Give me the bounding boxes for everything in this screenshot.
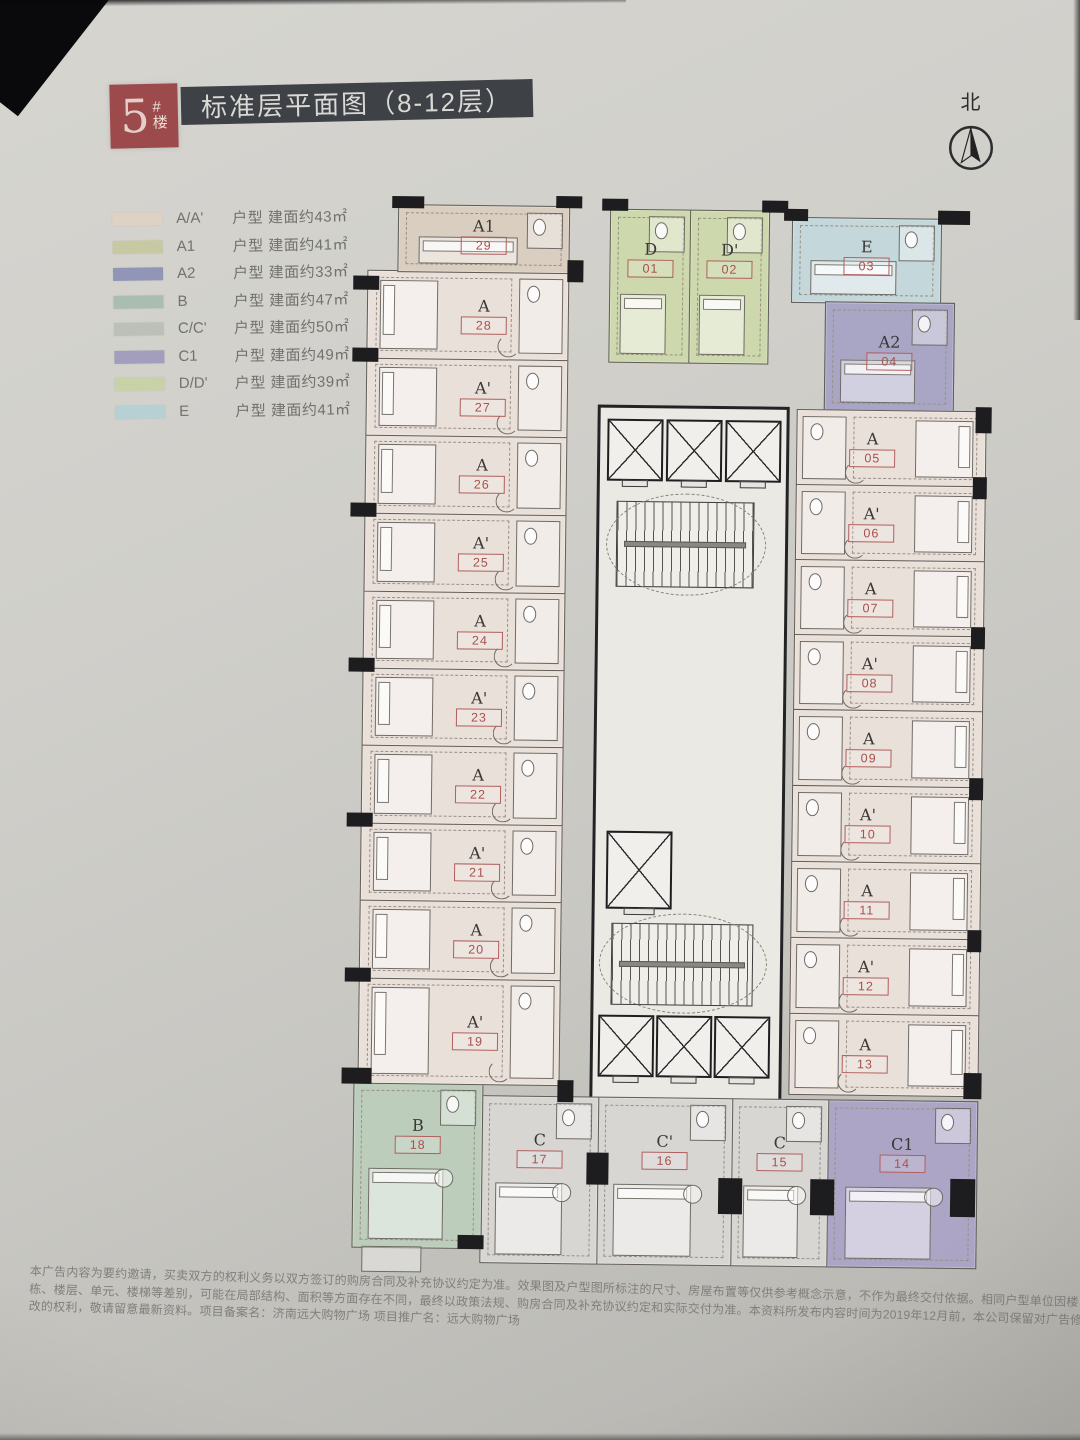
toilet-icon [805, 875, 818, 892]
bed-icon [612, 1184, 691, 1257]
unit-16: C'16 [595, 1097, 733, 1267]
unit-type-letter: A [472, 767, 484, 784]
pillow [952, 954, 965, 996]
unit-21: A'21 [360, 822, 563, 903]
legend-desc: 户型 建面约43㎡ [232, 206, 348, 229]
unit-label: A'23 [456, 689, 502, 727]
wall-block [810, 1179, 834, 1215]
bed-icon [379, 280, 438, 350]
bed-icon [699, 295, 745, 355]
pillow [379, 605, 392, 648]
unit-number: 22 [455, 785, 501, 804]
unit-label: A07 [847, 580, 893, 618]
staircase-icon [616, 501, 755, 589]
unit-number: 11 [844, 901, 890, 920]
unit-type-letter: A [470, 922, 482, 939]
toilet-icon [803, 1027, 816, 1044]
unit-label: A24 [457, 612, 503, 650]
bathroom [514, 676, 559, 742]
bathroom [912, 309, 948, 345]
legend-item: C/C'户型 建面约50㎡ [114, 312, 350, 343]
unit-number: 14 [879, 1155, 925, 1174]
bed-icon [371, 987, 430, 1075]
unit-label: A20 [453, 921, 499, 959]
unit-label: A'10 [845, 806, 891, 844]
unit-label: A22 [455, 766, 501, 804]
toilet-icon [807, 723, 820, 740]
wall-block [347, 812, 373, 826]
pillow [382, 372, 395, 415]
unit-number: 07 [847, 599, 893, 618]
unit-label: C'16 [641, 1133, 687, 1171]
legend-item: B户型 建面约47㎡ [113, 285, 349, 316]
unit-label: C114 [879, 1136, 925, 1174]
bed-icon [619, 294, 666, 354]
bathroom [796, 868, 841, 933]
toilet-icon [808, 648, 821, 665]
unit-number: 29 [461, 236, 507, 255]
wall-block [975, 407, 991, 433]
elevator-icon [714, 1016, 771, 1079]
table-icon [924, 1188, 943, 1207]
bed-icon [911, 720, 970, 779]
legend-swatch [114, 350, 164, 364]
bed-icon [907, 1024, 966, 1087]
bathroom [517, 366, 562, 432]
bathroom [440, 1090, 476, 1126]
bed-icon [372, 909, 431, 970]
bathroom [800, 566, 845, 630]
unit-number: 08 [846, 674, 892, 693]
unit-type-letter: E [861, 238, 873, 255]
unit-number: 16 [641, 1152, 687, 1171]
bathroom [512, 831, 557, 897]
door-arc [837, 1071, 859, 1093]
unit-type-letter: A [865, 580, 877, 597]
unit-type-letter: A' [471, 689, 487, 706]
bathroom [799, 641, 844, 705]
unit-10: A'10 [791, 785, 982, 865]
unit-type-letter: A1 [473, 217, 495, 234]
unit-type-letter: C1 [891, 1136, 914, 1153]
unit-type-letter: C' [656, 1133, 673, 1150]
table-icon [683, 1185, 702, 1204]
unit-type-letter: A [859, 1036, 871, 1053]
unit-number: 01 [627, 259, 673, 278]
floor-plan: D01D'02E03A204A05A'06A07A'08A09A'10A11A'… [339, 192, 994, 1278]
wall-block [352, 348, 378, 362]
unit-01: D01 [608, 209, 692, 364]
unit-25: A'25 [363, 512, 566, 594]
pillow [624, 298, 663, 309]
unit-23: A'23 [362, 667, 565, 748]
unit-type-letter: A' [475, 379, 491, 396]
wall-block [602, 199, 628, 211]
bed-icon [368, 1168, 443, 1240]
wall-block [567, 260, 583, 282]
unit-type-letter: A' [858, 958, 874, 975]
bathroom [801, 491, 846, 555]
bathroom [797, 792, 842, 857]
pillow [374, 992, 387, 1055]
elevator-icon [606, 831, 673, 910]
bathroom [511, 908, 556, 975]
legend-swatch [115, 377, 165, 391]
bed-icon [374, 754, 433, 815]
toilet-icon [518, 993, 531, 1010]
unit-type-letter: A' [473, 535, 489, 552]
bathroom [794, 1020, 839, 1089]
pillow [376, 837, 389, 880]
pillow [955, 651, 968, 693]
bed-icon [378, 444, 437, 505]
toilet-icon [655, 222, 668, 239]
wall-block [345, 967, 371, 981]
elevator-icon [656, 1015, 713, 1078]
pillow [380, 527, 393, 571]
unit-type-letter: A [863, 730, 875, 747]
door-arc [497, 335, 519, 357]
wall-block [967, 930, 981, 952]
unit-number: 04 [866, 352, 912, 371]
north-label: 北 [936, 86, 1006, 115]
unit-number: 20 [453, 940, 499, 959]
legend-label: E [179, 402, 235, 420]
legend-label: A1 [177, 237, 233, 255]
toilet-icon [519, 915, 532, 932]
toilet-icon [562, 1109, 575, 1126]
unit-04: A204 [824, 301, 955, 413]
pillow [849, 1191, 928, 1203]
legend-swatch [115, 405, 165, 419]
unit-type-letter: A' [860, 806, 876, 823]
wall-block [350, 503, 376, 517]
unit-number: 26 [459, 475, 505, 494]
toilet-icon [521, 760, 534, 777]
unit-type-letter: A' [469, 844, 485, 861]
pillow [703, 299, 740, 310]
bed-icon [910, 796, 969, 855]
wall-block [557, 1080, 573, 1102]
legend-item: A2户型 建面约33㎡ [113, 257, 349, 288]
unit-06: A'06 [795, 484, 986, 563]
wall-block [341, 1067, 371, 1083]
pillow [381, 449, 394, 493]
toilet-icon [905, 231, 918, 248]
toilet-icon [446, 1096, 459, 1113]
unit-number: 12 [843, 977, 889, 996]
bed-icon [913, 570, 972, 628]
unit-number: 05 [849, 449, 895, 468]
unit-type-letter: D [644, 240, 657, 257]
pillow [378, 682, 391, 725]
toilet-icon [733, 223, 746, 240]
unit-type-letter: A' [862, 655, 878, 672]
unit-label: B18 [395, 1117, 441, 1155]
unit-type-letter: A [478, 297, 490, 314]
bathroom [513, 753, 558, 820]
legend-desc: 户型 建面约41㎡ [232, 233, 348, 256]
unit-type-legend: A/A'户型 建面约43㎡A1户型 建面约41㎡A2户型 建面约33㎡B户型 建… [112, 202, 351, 426]
legend-swatch [112, 212, 162, 226]
unit-28: A28 [366, 270, 569, 361]
unit-number: 10 [845, 825, 891, 844]
unit-19: A'19 [357, 977, 560, 1086]
bathroom [517, 443, 562, 510]
wall-block [353, 276, 379, 290]
pillow [375, 914, 388, 958]
bathroom [802, 416, 847, 480]
north-arrow-icon [942, 117, 1000, 175]
pillow [954, 726, 967, 768]
toilet-icon [918, 315, 931, 332]
unit-label: C17 [516, 1131, 562, 1169]
elevator-icon [607, 419, 664, 482]
toilet-icon [809, 573, 822, 590]
legend-item: A/A'户型 建面约43㎡ [112, 202, 348, 233]
unit-number: 03 [843, 257, 889, 276]
unit-label: A05 [849, 430, 895, 468]
unit-type-letter: A [861, 882, 873, 899]
unit-label: A'08 [846, 655, 892, 693]
wall-block [586, 1152, 608, 1184]
legend-label: C1 [178, 347, 234, 365]
unit-05: A05 [796, 409, 987, 488]
unit-label: A28 [461, 297, 507, 335]
unit-label: A204 [866, 333, 912, 371]
unit-27: A'27 [365, 357, 568, 438]
legend-label: C/C' [178, 319, 234, 337]
bed-icon [915, 420, 974, 478]
unit-type-letter: D' [721, 241, 738, 258]
pillow [956, 576, 969, 618]
bed-icon [377, 522, 436, 583]
wall-block [969, 778, 983, 800]
unit-number: 02 [706, 260, 752, 279]
unit-label: A'21 [454, 844, 500, 882]
bed-icon [379, 367, 438, 427]
legend-label: A/A' [176, 209, 232, 227]
pillow [373, 1172, 439, 1184]
elevator-icon [725, 420, 782, 483]
north-indicator: 北 [936, 86, 1006, 175]
toilet-icon [809, 498, 822, 515]
wall-block [784, 209, 808, 221]
bathroom [798, 716, 843, 781]
unit-13: A13 [788, 1013, 979, 1097]
unit-label: D01 [627, 240, 673, 278]
unit-label: A26 [459, 456, 505, 494]
building-badge: 5 # 楼 [109, 83, 178, 149]
bathroom [795, 944, 840, 1009]
table-icon [434, 1169, 453, 1188]
legend-label: B [177, 292, 233, 310]
wall-block [971, 627, 985, 649]
unit-24: A24 [363, 590, 566, 671]
toilet-icon [524, 528, 537, 545]
legend-label: A2 [177, 264, 233, 282]
pillow [953, 802, 966, 844]
unit-type-letter: C [774, 1134, 786, 1151]
unit-label: E03 [843, 238, 889, 276]
legend-label: D/D' [179, 374, 235, 392]
building-number: 5 [120, 93, 150, 140]
pillow [383, 285, 396, 335]
unit-17: C17 [479, 1095, 599, 1264]
pillow [377, 759, 390, 803]
pillow [953, 878, 966, 920]
unit-18: B18 [351, 1082, 483, 1250]
wall-block [950, 1179, 975, 1217]
wall-block [963, 1073, 981, 1099]
bathroom [899, 225, 935, 261]
toilet-icon [806, 799, 819, 816]
bed-icon [844, 1187, 931, 1260]
unit-number: 09 [846, 749, 892, 768]
unit-12: A'12 [789, 937, 980, 1017]
wall-block [556, 196, 582, 208]
unit-label: A'12 [843, 958, 889, 996]
unit-26: A26 [364, 434, 567, 516]
legend-swatch [113, 267, 163, 281]
bed-icon [375, 677, 434, 737]
toilet-icon [526, 373, 539, 390]
unit-08: A'08 [793, 634, 984, 713]
unit-type-letter: C [534, 1131, 546, 1148]
bathroom [935, 1108, 971, 1144]
unit-number: 13 [842, 1055, 888, 1074]
unit-number: 24 [457, 631, 503, 650]
unit-type-letter: A2 [879, 333, 901, 350]
toilet-icon [792, 1112, 805, 1129]
wall-block [973, 477, 987, 499]
unit-type-letter: A' [467, 1013, 483, 1030]
photo-edge [1073, 0, 1080, 320]
building-suffix: # 楼 [152, 99, 168, 131]
bed-icon [908, 948, 967, 1007]
unit-type-letter: A [867, 430, 879, 447]
unit-number: 23 [456, 708, 502, 727]
toilet-icon [520, 838, 533, 855]
legend-item: C1户型 建面约49㎡ [114, 340, 350, 371]
bed-icon [914, 495, 973, 553]
pillow [957, 501, 970, 543]
wall-block [349, 658, 375, 672]
unit-label: A11 [844, 882, 890, 920]
unit-number: 25 [458, 553, 504, 572]
legend-swatch [113, 295, 163, 309]
wall-block [718, 1178, 742, 1214]
bathroom [518, 279, 563, 355]
unit-type-letter: A [476, 457, 488, 474]
unit-02: D'02 [688, 210, 770, 365]
unit-number: 21 [454, 863, 500, 882]
pillow [617, 1188, 687, 1200]
legend-swatch [113, 240, 163, 254]
staircase-icon [610, 923, 753, 1007]
unit-number: 15 [756, 1153, 802, 1172]
pillow [958, 426, 971, 468]
pillow [499, 1187, 558, 1199]
door-arc [488, 1060, 510, 1082]
unit-type-letter: B [412, 1117, 424, 1134]
unit-number: 06 [848, 524, 894, 543]
bed-icon [912, 645, 971, 703]
photo-edge [0, 1433, 1080, 1440]
balcony [361, 1246, 421, 1273]
bathroom [515, 599, 560, 665]
toilet-icon [525, 450, 538, 467]
legend-desc: 户型 建面约49㎡ [234, 343, 350, 366]
bathroom [516, 521, 561, 588]
unit-22: A22 [361, 744, 564, 826]
unit-label: A09 [846, 730, 892, 768]
unit-07: A07 [794, 559, 985, 638]
legend-desc: 户型 建面约33㎡ [233, 261, 349, 284]
unit-label: A'25 [458, 534, 504, 572]
unit-29: A129 [397, 204, 570, 274]
unit-09: A09 [792, 709, 983, 789]
toilet-icon [810, 423, 823, 440]
unit-label: A129 [461, 217, 507, 255]
table-icon [553, 1183, 572, 1202]
toilet-icon [522, 683, 535, 700]
unit-number: 28 [461, 316, 507, 335]
unit-11: A11 [790, 861, 981, 941]
wall-block [938, 211, 970, 225]
unit-label: A'27 [460, 379, 506, 417]
toilet-icon [941, 1114, 954, 1131]
bed-icon [909, 872, 968, 931]
unit-label: A13 [842, 1036, 888, 1074]
unit-20: A20 [359, 899, 562, 981]
wall-block [457, 1235, 483, 1249]
unit-type-letter: A [474, 612, 486, 629]
bathroom [690, 1105, 726, 1141]
legend-item: D/D'户型 建面约39㎡ [115, 367, 351, 398]
toilet-icon [804, 951, 817, 968]
bathroom [527, 213, 563, 249]
legend-desc: 户型 建面约39㎡ [235, 371, 351, 394]
unit-03: E03 [791, 217, 942, 305]
unit-label: A'19 [452, 1013, 498, 1051]
toilet-icon [696, 1111, 709, 1128]
bed-icon [373, 832, 432, 892]
unit-number: 19 [452, 1032, 498, 1051]
pillow [951, 1030, 964, 1075]
legend-desc: 户型 建面约50㎡ [234, 316, 350, 339]
unit-label: A'06 [848, 505, 894, 543]
toilet-icon [527, 286, 540, 303]
legend-item: E户型 建面约41㎡ [115, 395, 351, 426]
unit-number: 27 [460, 398, 506, 417]
toilet-icon [523, 606, 536, 623]
bathroom [510, 986, 555, 1080]
unit-label: C15 [756, 1134, 802, 1172]
legend-swatch [114, 322, 164, 336]
elevator-icon [666, 419, 723, 482]
elevator-icon [598, 1015, 655, 1078]
table-icon [787, 1186, 806, 1205]
legend-desc: 户型 建面约41㎡ [235, 398, 351, 421]
legend-desc: 户型 建面约47㎡ [233, 288, 349, 311]
legend-item: A1户型 建面约41㎡ [112, 230, 348, 261]
toilet-icon [533, 219, 546, 236]
unit-type-letter: A' [864, 505, 880, 522]
bed-icon [376, 600, 435, 660]
unit-label: D'02 [706, 241, 752, 279]
unit-number: 17 [516, 1150, 562, 1169]
